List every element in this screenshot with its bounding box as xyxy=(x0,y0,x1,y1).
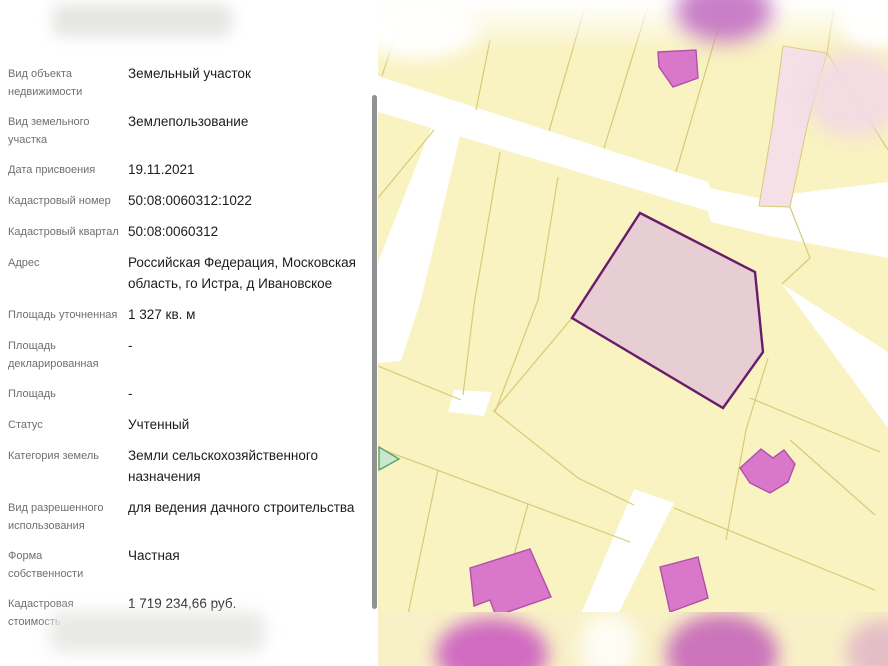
field-value: для ведения дачного строительства xyxy=(128,497,364,535)
redacted-footer-blur xyxy=(50,612,265,652)
field-row: Вид земельного участка Землепользование xyxy=(8,111,364,149)
field-label: Вид объекта недвижимости xyxy=(8,63,120,101)
field-value: 50:08:0060312 xyxy=(128,221,364,242)
field-row: Категория земель Земли сельскохозяйствен… xyxy=(8,445,364,487)
field-value: Частная xyxy=(128,545,364,583)
field-label: Адрес xyxy=(8,252,120,294)
field-row: Кадастровый квартал 50:08:0060312 xyxy=(8,221,364,242)
cadastral-app-window: Вид объекта недвижимости Земельный участ… xyxy=(0,0,888,666)
field-row: Статус Учтенный xyxy=(8,414,364,435)
field-value: - xyxy=(128,383,364,404)
field-value: Российская Федерация, Московская область… xyxy=(128,252,364,294)
field-label: Категория земель xyxy=(8,445,120,487)
field-row: Адрес Российская Федерация, Московская о… xyxy=(8,252,364,294)
field-value: 19.11.2021 xyxy=(128,159,364,180)
field-value: 1 327 кв. м xyxy=(128,304,364,325)
field-row: Площадь декларированная - xyxy=(8,335,364,373)
field-row: Площадь - xyxy=(8,383,364,404)
field-row: Форма собственности Частная xyxy=(8,545,364,583)
field-label: Кадастровый номер xyxy=(8,190,120,211)
field-label: Вид разрешенного использования xyxy=(8,497,120,535)
field-value: Землепользование xyxy=(128,111,364,149)
field-label: Площадь xyxy=(8,383,120,404)
field-label: Форма собственности xyxy=(8,545,120,583)
field-label: Кадастровый квартал xyxy=(8,221,120,242)
field-row: Площадь уточненная 1 327 кв. м xyxy=(8,304,364,325)
field-label: Вид земельного участка xyxy=(8,111,120,149)
field-value: 50:08:0060312:1022 xyxy=(128,190,364,211)
cadastral-map[interactable] xyxy=(378,0,888,666)
field-row: Дата присвоения 19.11.2021 xyxy=(8,159,364,180)
field-value: - xyxy=(128,335,364,373)
field-value: Учтенный xyxy=(128,414,364,435)
field-row: Вид объекта недвижимости Земельный участ… xyxy=(8,63,364,101)
field-label: Дата присвоения xyxy=(8,159,120,180)
field-row: Вид разрешенного использования для веден… xyxy=(8,497,364,535)
info-panel: Вид объекта недвижимости Земельный участ… xyxy=(0,0,378,666)
object-attributes-list: Вид объекта недвижимости Земельный участ… xyxy=(8,63,364,641)
field-value: Земли сельскохозяйственного назначения xyxy=(128,445,364,487)
field-label: Площадь декларированная xyxy=(8,335,120,373)
field-label: Статус xyxy=(8,414,120,435)
field-row: Кадастровый номер 50:08:0060312:1022 xyxy=(8,190,364,211)
redacted-title-blur xyxy=(52,4,232,37)
panel-scrollbar[interactable] xyxy=(372,95,377,609)
field-label: Площадь уточненная xyxy=(8,304,120,325)
field-value: Земельный участок xyxy=(128,63,364,101)
